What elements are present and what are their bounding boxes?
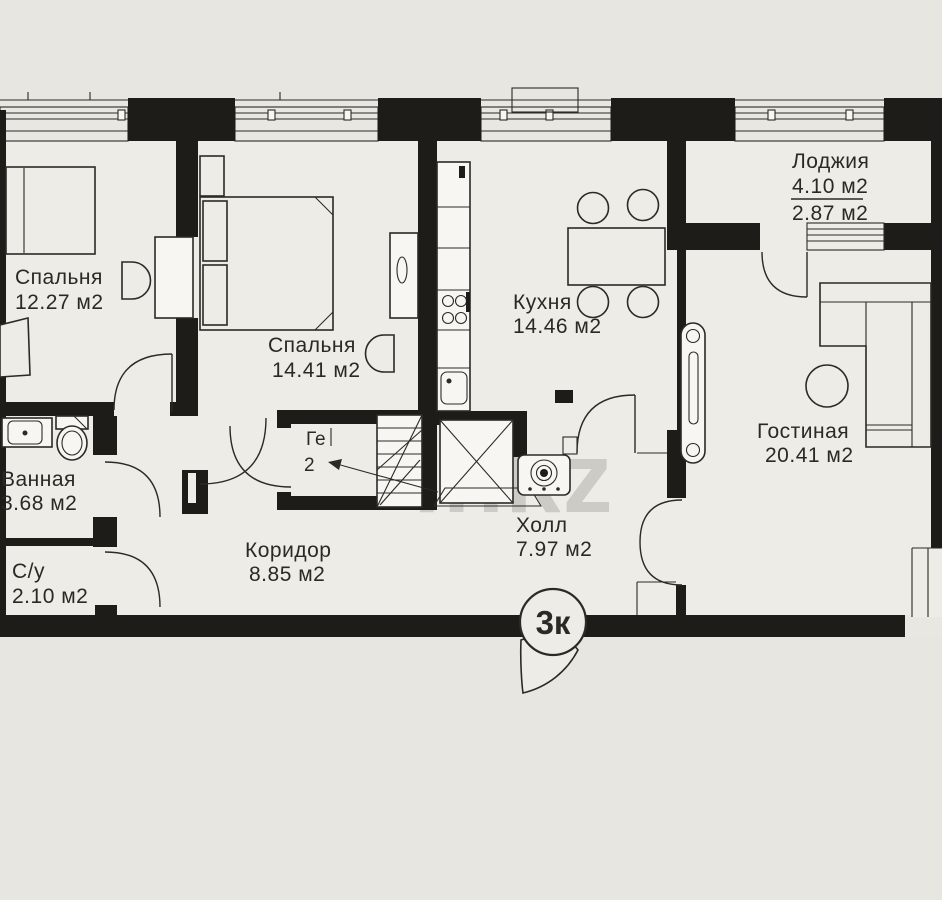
- washing-machine: [518, 455, 570, 495]
- wall-bath-right-mid: [93, 517, 117, 547]
- room-area: 3.68 м2: [1, 492, 77, 515]
- room-area: 8.85 м2: [249, 563, 325, 586]
- room-name: Гостиная: [757, 420, 849, 443]
- stairwell-opening: [912, 548, 942, 617]
- wall-pier: [884, 98, 931, 141]
- room-name: Кухня: [513, 291, 572, 314]
- room-area: 14.41 м2: [272, 359, 361, 382]
- wall-loggia-partition: [667, 223, 760, 250]
- room-name: Ге: [306, 429, 326, 450]
- shaft-slit: [188, 473, 196, 503]
- armchair: [366, 335, 394, 372]
- wardrobe-niche: [155, 237, 193, 318]
- wall-bath-right-bottom: [95, 605, 117, 617]
- badge-text: 3к: [536, 604, 571, 641]
- wall-bath-wc-divider: [0, 538, 93, 546]
- apartment-type-badge: 3к: [520, 589, 586, 693]
- nightstand: [200, 156, 224, 196]
- chair: [628, 190, 659, 221]
- room-area-reduced: 2.87 м2: [792, 202, 868, 225]
- room-area: 20.41 м2: [765, 444, 854, 467]
- wall-bottom-exterior: [0, 615, 905, 637]
- wall-hall-top-stub: [555, 390, 573, 403]
- toilet: [56, 416, 88, 460]
- floorplan-canvas: ln kz: [0, 0, 942, 900]
- room-area: 2: [304, 455, 315, 476]
- wall-bedroom-divider-lower: [176, 318, 198, 412]
- room-name: Лоджия: [792, 150, 869, 173]
- label-loggia: Лоджия 4.10 м2 2.87 м2: [791, 150, 869, 225]
- bed: [6, 167, 95, 254]
- wall-bedroom1-bottom: [0, 402, 114, 416]
- armchair: [122, 262, 151, 299]
- room-name: Ванная: [1, 468, 76, 491]
- wall-loggia-partition-pier: [884, 223, 931, 250]
- room-area-total: 4.10 м2: [792, 175, 868, 198]
- room-area: 2.10 м2: [12, 585, 88, 608]
- room-area: 7.97 м2: [516, 538, 592, 561]
- pillow: [203, 265, 227, 325]
- label-bathroom: Ванная 3.68 м2: [1, 468, 77, 515]
- room-name: Спальня: [15, 266, 103, 289]
- label-living: Гостиная 20.41 м2: [757, 420, 854, 467]
- vanity-sink: [2, 418, 52, 447]
- closet-wardrobe: [377, 415, 422, 507]
- room-name: Спальня: [268, 334, 356, 357]
- wall-hall-living-stub: [676, 585, 686, 615]
- wall-closet-left-stub-top: [277, 410, 291, 428]
- wall-bath-right-top: [93, 416, 117, 455]
- room-area: 12.27 м2: [15, 291, 104, 314]
- coffee-table: [806, 365, 848, 407]
- cabinet-handle: [459, 166, 465, 178]
- nightstand: [0, 318, 30, 377]
- room-name: Холл: [516, 514, 568, 537]
- wall-bedroom-divider-upper: [176, 141, 198, 237]
- chair: [628, 287, 659, 318]
- dining-table: [568, 228, 665, 285]
- label-corridor: Коридор 8.85 м2: [245, 539, 331, 586]
- pillow: [203, 201, 227, 261]
- wall-pier: [128, 98, 235, 141]
- room-area: 14.46 м2: [513, 315, 602, 338]
- floorplan-drawing: ln kz: [0, 0, 942, 900]
- wall-pier: [611, 98, 735, 141]
- room-name: С/у: [12, 560, 45, 583]
- wall-kitchen-bottom-stub: [513, 425, 527, 457]
- room-name: Коридор: [245, 539, 331, 562]
- chair: [578, 193, 609, 224]
- radiator: [681, 323, 705, 463]
- chair: [578, 287, 609, 318]
- wall-bedroom1-bottom-stub: [170, 402, 198, 416]
- wall-right-exterior: [931, 98, 942, 548]
- tall-cabinet: [390, 233, 418, 318]
- wall-pier: [378, 98, 481, 141]
